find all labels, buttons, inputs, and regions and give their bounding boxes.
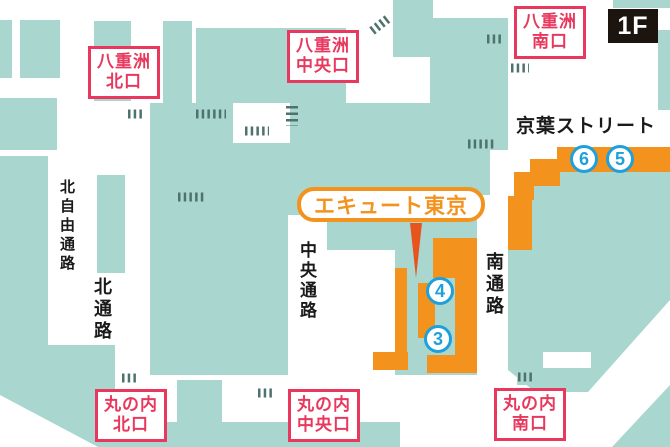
map-marker-4: 4 xyxy=(426,277,454,305)
exit-label-yaesu-south: 八重洲 南口 xyxy=(514,6,586,59)
ecute-shop-area xyxy=(427,355,477,373)
ecute-shop-area xyxy=(373,352,408,370)
exit-label-line: 北口 xyxy=(97,72,151,92)
ecute-shop-area xyxy=(455,278,477,355)
exit-label-line: 八重洲 xyxy=(97,52,151,72)
passage-cutout xyxy=(233,103,290,143)
keiyo-street-highlight xyxy=(508,196,532,250)
building-block xyxy=(97,175,125,273)
building-block xyxy=(430,18,508,150)
map-marker-6: 6 xyxy=(570,145,598,173)
building-block xyxy=(0,20,12,78)
building-block xyxy=(163,21,192,113)
ecute-shop-area xyxy=(433,238,477,278)
exit-label-line: 丸の内 xyxy=(503,394,557,414)
exit-label-line: 北口 xyxy=(104,415,158,435)
exit-label-line: 八重洲 xyxy=(523,12,577,32)
exit-label-line: 南口 xyxy=(523,32,577,52)
passage-cutout xyxy=(543,352,591,368)
ecute-tokyo-callout: エキュート東京 xyxy=(297,187,485,222)
map-marker-5: 5 xyxy=(606,145,634,173)
keiyo-street-highlight xyxy=(530,159,560,186)
building-block xyxy=(658,30,670,110)
ticket-gate-icon xyxy=(372,17,390,31)
station-map-1f: 八重洲 北口 八重洲 中央口 八重洲 南口 丸の内 北口 丸の内 中央口 丸の内… xyxy=(0,0,670,447)
exit-label-marunouchi-north: 丸の内 北口 xyxy=(95,389,167,442)
passage-label-central: 中央通路 xyxy=(294,241,319,321)
passage-label-north: 北通路 xyxy=(89,277,115,343)
exit-label-marunouchi-south: 丸の内 南口 xyxy=(494,388,566,441)
exit-label-line: 南口 xyxy=(503,414,557,434)
keiyo-street-highlight xyxy=(514,172,534,200)
building-block xyxy=(0,98,57,150)
exit-label-marunouchi-central: 丸の内 中央口 xyxy=(288,389,360,442)
map-marker-3: 3 xyxy=(424,325,452,353)
ecute-shop-area xyxy=(395,268,407,353)
exit-label-line: 中央口 xyxy=(297,415,351,435)
exit-label-yaesu-north: 八重洲 北口 xyxy=(88,46,160,99)
exit-label-line: 八重洲 xyxy=(296,36,350,56)
floor-badge: 1F xyxy=(608,9,658,43)
exit-label-line: 中央口 xyxy=(296,56,350,76)
exit-label-yaesu-central: 八重洲 中央口 xyxy=(287,30,359,83)
passage-label-north-free: 北自由通路 xyxy=(56,179,77,274)
building-block xyxy=(177,380,222,422)
building-corner-triangle xyxy=(612,385,670,447)
exit-label-line: 丸の内 xyxy=(297,395,351,415)
exit-label-line: 丸の内 xyxy=(104,395,158,415)
building-block xyxy=(20,20,60,78)
keiyo-street-label: 京葉ストリート xyxy=(516,111,656,138)
passage-label-south: 南通路 xyxy=(481,252,507,318)
building-block xyxy=(613,0,670,8)
building-block xyxy=(393,0,433,57)
